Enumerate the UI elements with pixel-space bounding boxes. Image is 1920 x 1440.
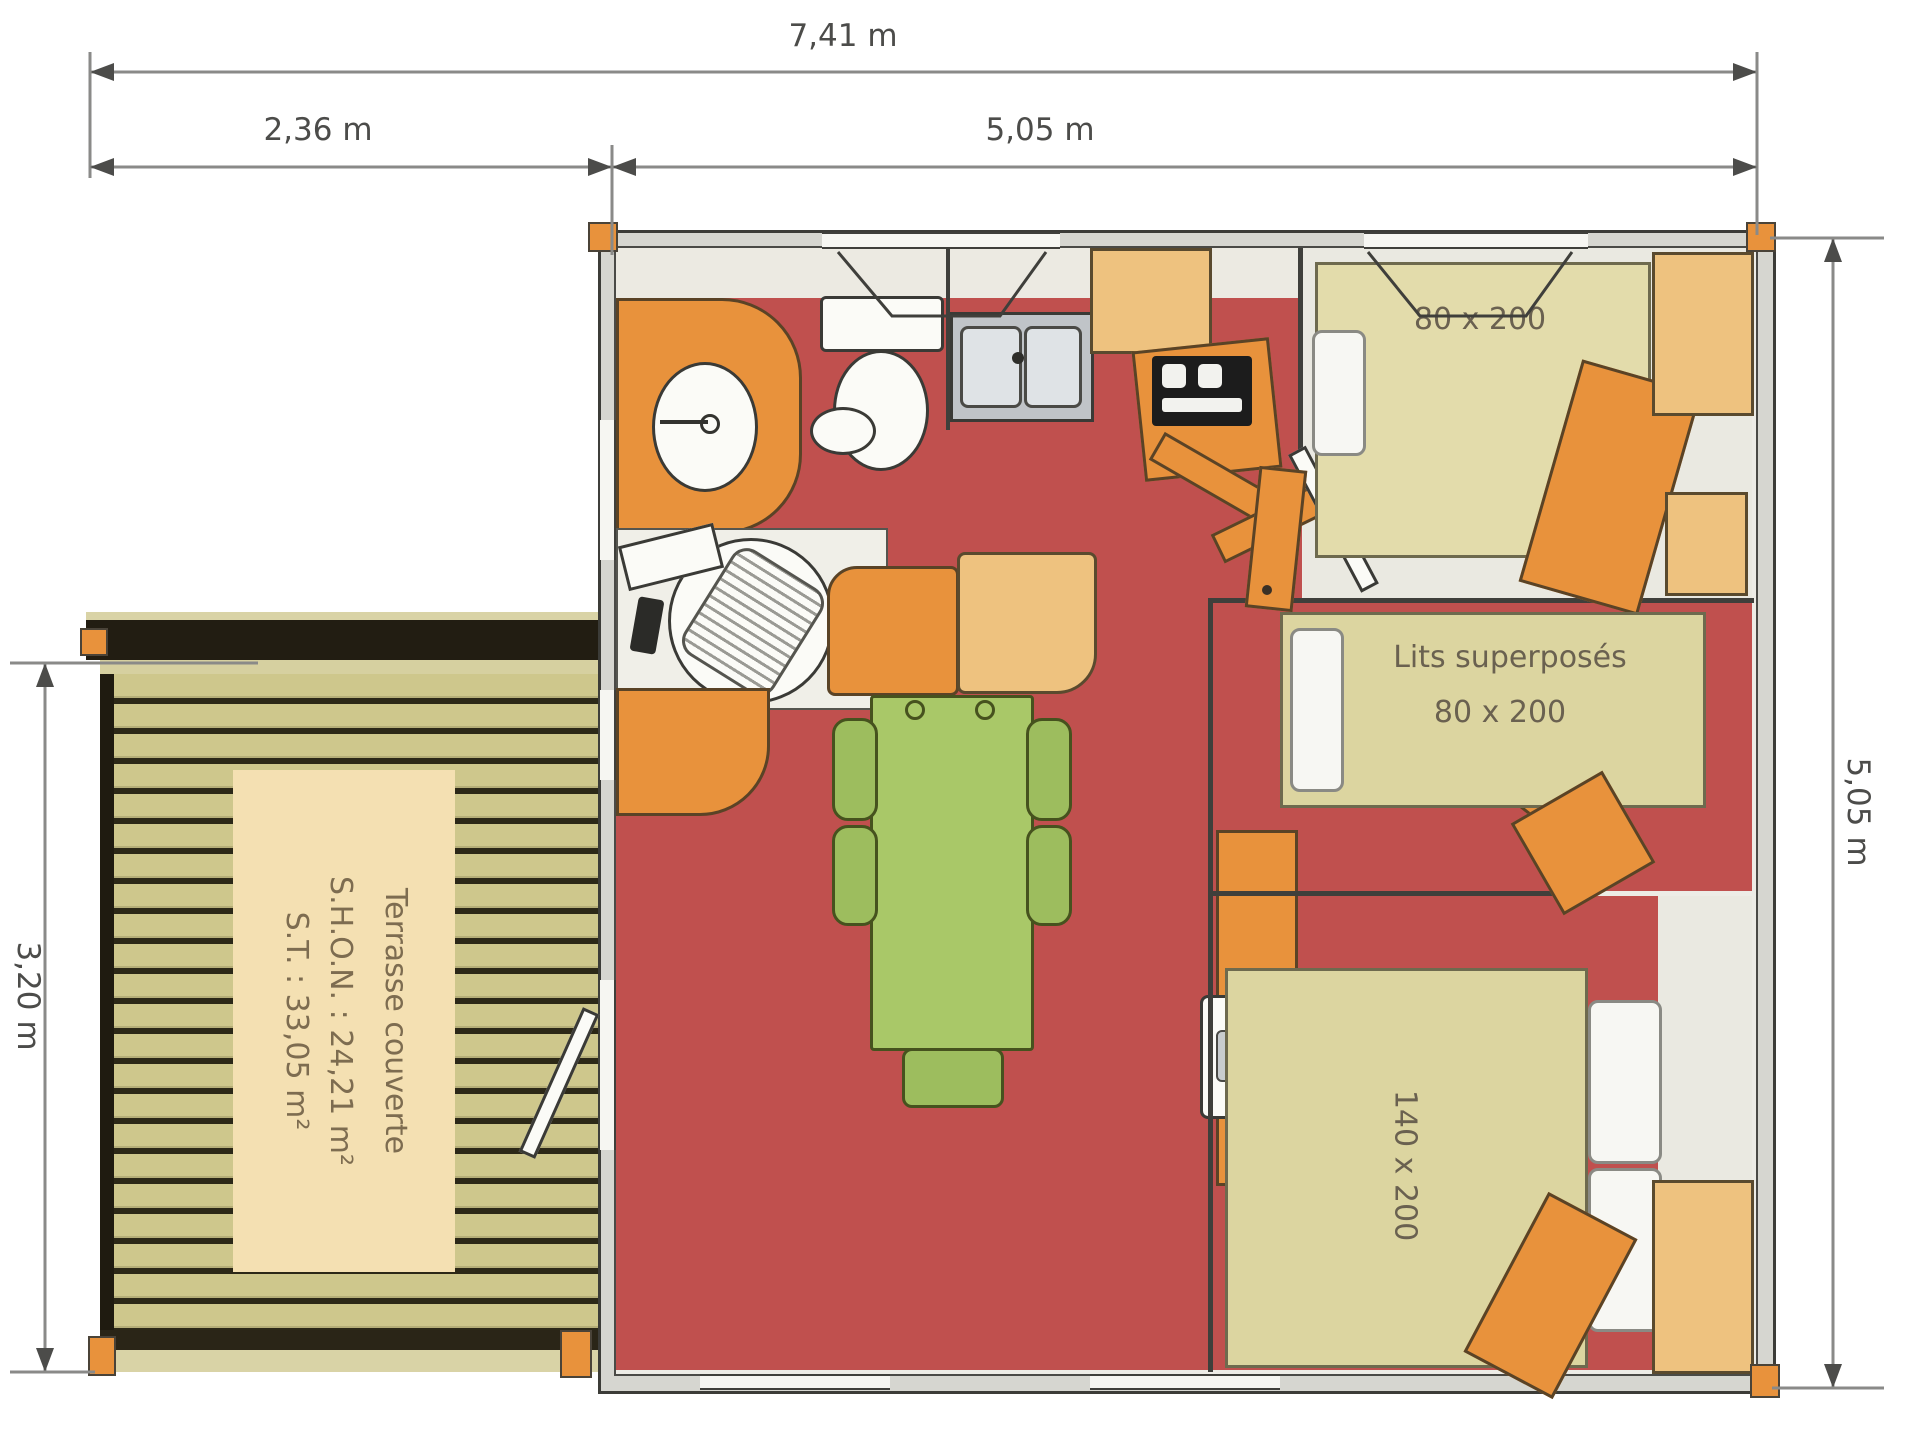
dim-label-terrace-depth: 3,20 m <box>10 876 46 1116</box>
floor-plan: Terrasse couverte S.H.O.N. : 24,21 m² S.… <box>0 0 1920 1440</box>
dimension-overlay <box>0 0 1920 1440</box>
dim-label-total-width: 7,41 m <box>723 18 963 54</box>
dim-label-building-width: 5,05 m <box>920 112 1160 148</box>
window-sash-bathroom <box>838 252 1046 316</box>
dim-label-building-depth: 5,05 m <box>1840 692 1876 932</box>
dim-label-terrace-width: 2,36 m <box>198 112 438 148</box>
window-sash-bedroom1 <box>1368 252 1572 316</box>
